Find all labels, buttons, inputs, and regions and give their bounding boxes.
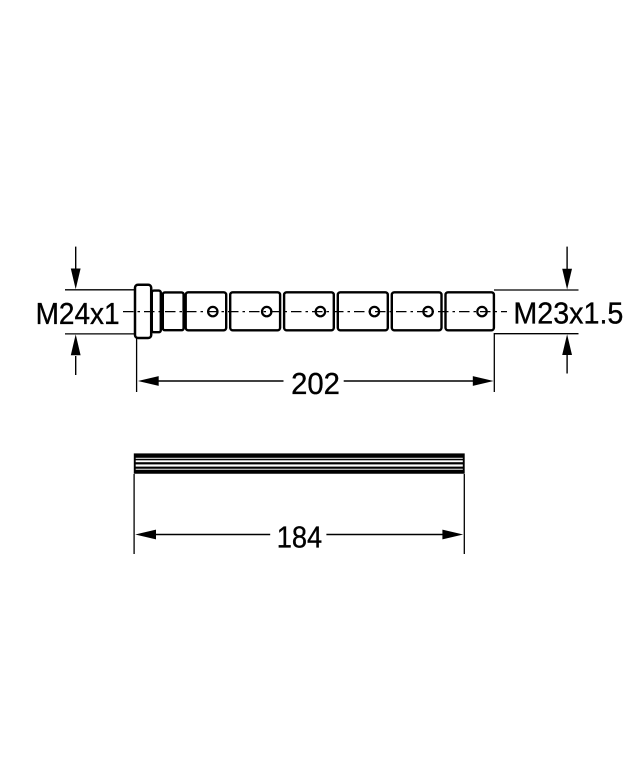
svg-text:M23x1.5: M23x1.5 [513, 296, 623, 331]
svg-text:184: 184 [277, 519, 323, 554]
svg-text:202: 202 [291, 366, 340, 401]
svg-text:M24x1: M24x1 [36, 296, 120, 331]
